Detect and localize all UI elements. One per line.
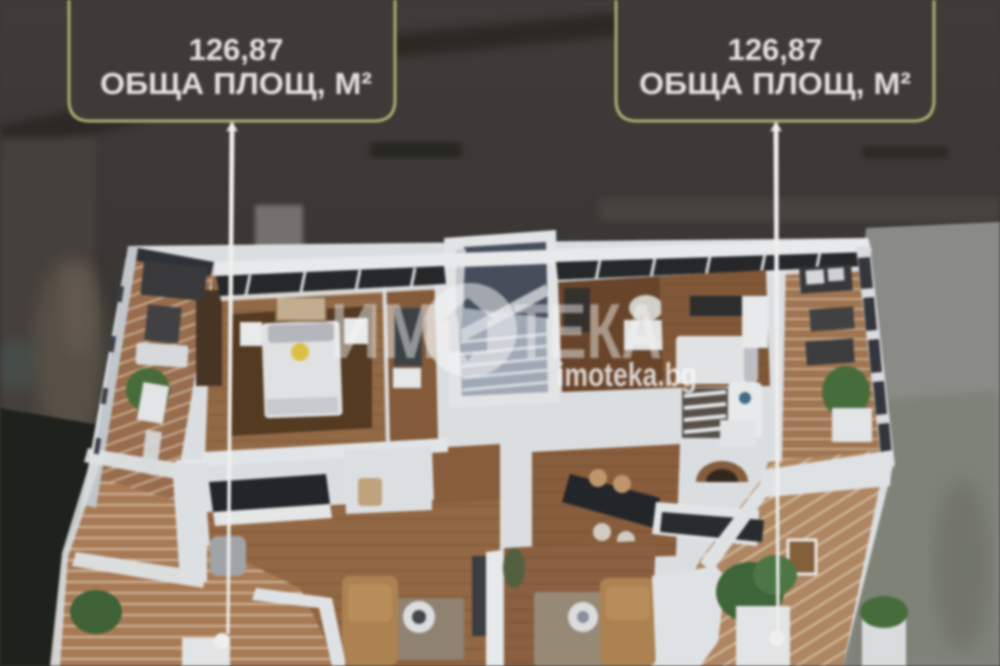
svg-text:ОБЩА ПЛОЩ, М²: ОБЩА ПЛОЩ, М² — [100, 66, 372, 101]
svg-text:imoteka.bg: imoteka.bg — [557, 356, 697, 393]
svg-text:126,87: 126,87 — [189, 32, 284, 67]
svg-text:ОБЩА ПЛОЩ, М²: ОБЩА ПЛОЩ, М² — [639, 66, 911, 101]
svg-text:126,87: 126,87 — [728, 32, 823, 67]
